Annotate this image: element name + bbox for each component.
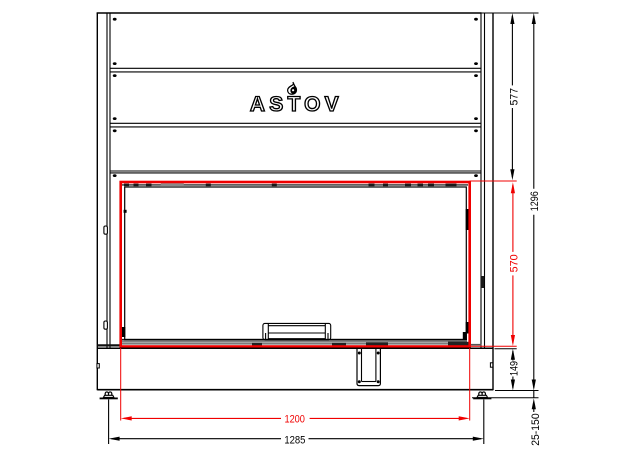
svg-text:ASTOV: ASTOV xyxy=(250,93,343,116)
svg-text:1296: 1296 xyxy=(529,191,541,211)
svg-text:1285: 1285 xyxy=(284,434,305,446)
svg-text:577: 577 xyxy=(508,88,520,106)
svg-text:149: 149 xyxy=(509,361,521,376)
svg-text:25-150: 25-150 xyxy=(530,413,542,445)
svg-text:1200: 1200 xyxy=(284,413,305,425)
svg-text:570: 570 xyxy=(509,254,521,272)
